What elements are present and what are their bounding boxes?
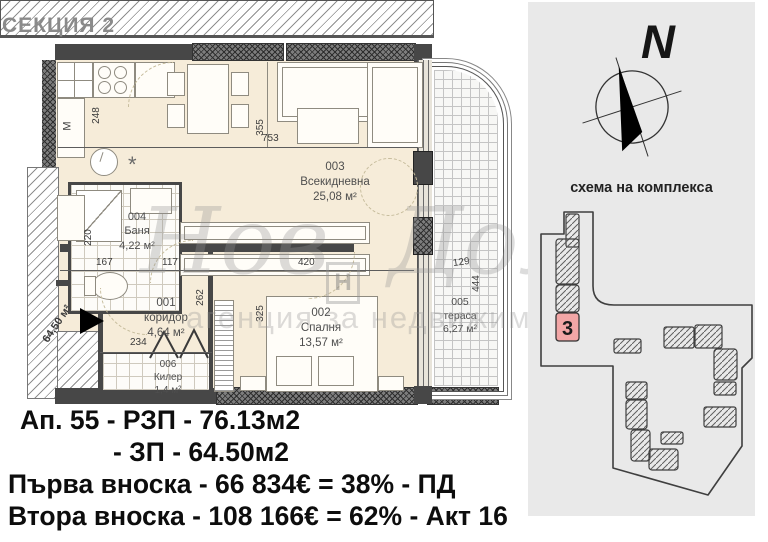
summary-line-2: - ЗП - 64.50м2: [113, 437, 289, 468]
wall-top-window: [193, 44, 283, 60]
dimension-label: 420: [298, 257, 315, 268]
dimension-line: [100, 352, 212, 353]
room-label-005: 005 тераса 6,27 м²: [424, 296, 496, 337]
dimension-label: 167: [96, 257, 113, 268]
vent-symbol: *: [128, 152, 137, 178]
dimension-line: [60, 270, 414, 271]
dimension-label: 248: [91, 107, 102, 124]
chair: [231, 72, 249, 96]
site-plan: 3: [536, 206, 756, 498]
wardrobe: [214, 300, 234, 392]
chair: [231, 104, 249, 128]
wall-corner: [414, 386, 432, 404]
chair: [167, 104, 185, 128]
wall-top-solid: [55, 44, 193, 60]
summary-line-3: Първа вноска - 66 834€ = 38% - ПД: [8, 469, 456, 500]
room-label-003: 003 Всекидневна 25,08 м²: [280, 160, 390, 205]
terrace-door-block: [414, 218, 432, 254]
dimension-line: [58, 147, 418, 148]
coffee-table: [297, 108, 359, 144]
sofa-chaise: [367, 62, 423, 148]
kitchen-cabinet-grid: [57, 62, 93, 98]
highlighted-building-number: 3: [562, 318, 573, 340]
stove-burner: [114, 81, 127, 94]
pillow: [318, 356, 354, 386]
neighbour-wall-hatch: [58, 332, 102, 390]
compass-icon: [577, 52, 687, 162]
stove-burner: [98, 66, 111, 79]
dimension-label: 444: [471, 275, 482, 292]
room-label-002: 002 Спалня 13,57 м²: [266, 306, 376, 351]
room-label-006: 006 Килер 1,4 м²: [130, 358, 206, 397]
wall-left: [42, 60, 56, 178]
appliance-label: М: [62, 121, 74, 130]
summary-line-4: Втора вноска - 108 166€ = 62% - Акт 16: [8, 501, 508, 532]
dimension-label: 117: [162, 257, 178, 268]
nightstand: [378, 376, 404, 391]
summary-line-1: Ап. 55 - РЗП - 76.13м2: [20, 405, 300, 436]
room-label-001: 001 коридор 4,64 м²: [116, 296, 216, 341]
dimension-label: 325: [255, 305, 266, 322]
washing-machine: [90, 148, 118, 176]
nightstand: [240, 376, 266, 391]
neighbour-wall-hatch: [28, 168, 58, 398]
section-label: СЕКЦИЯ 2: [2, 14, 115, 38]
floorplan-screenshot: СЕКЦИЯ 2 М *: [0, 0, 768, 542]
site-panel-title: схема на комплекса: [528, 180, 755, 196]
toilet-tank: [84, 276, 96, 296]
dimension-label: 129: [452, 256, 470, 269]
stove-burner: [114, 66, 127, 79]
dimension-label: 355: [255, 119, 266, 136]
wall-top-window: [287, 44, 415, 60]
terrace-floor: [434, 70, 498, 386]
dining-table: [187, 64, 229, 134]
pillow: [276, 356, 312, 386]
stove-burner: [98, 81, 111, 94]
kitchen-sink: [57, 195, 85, 241]
entrance-arrow: [80, 308, 104, 334]
room-label-004: 004 Баня 4,22 м²: [92, 210, 182, 253]
media-unit: [180, 222, 370, 244]
